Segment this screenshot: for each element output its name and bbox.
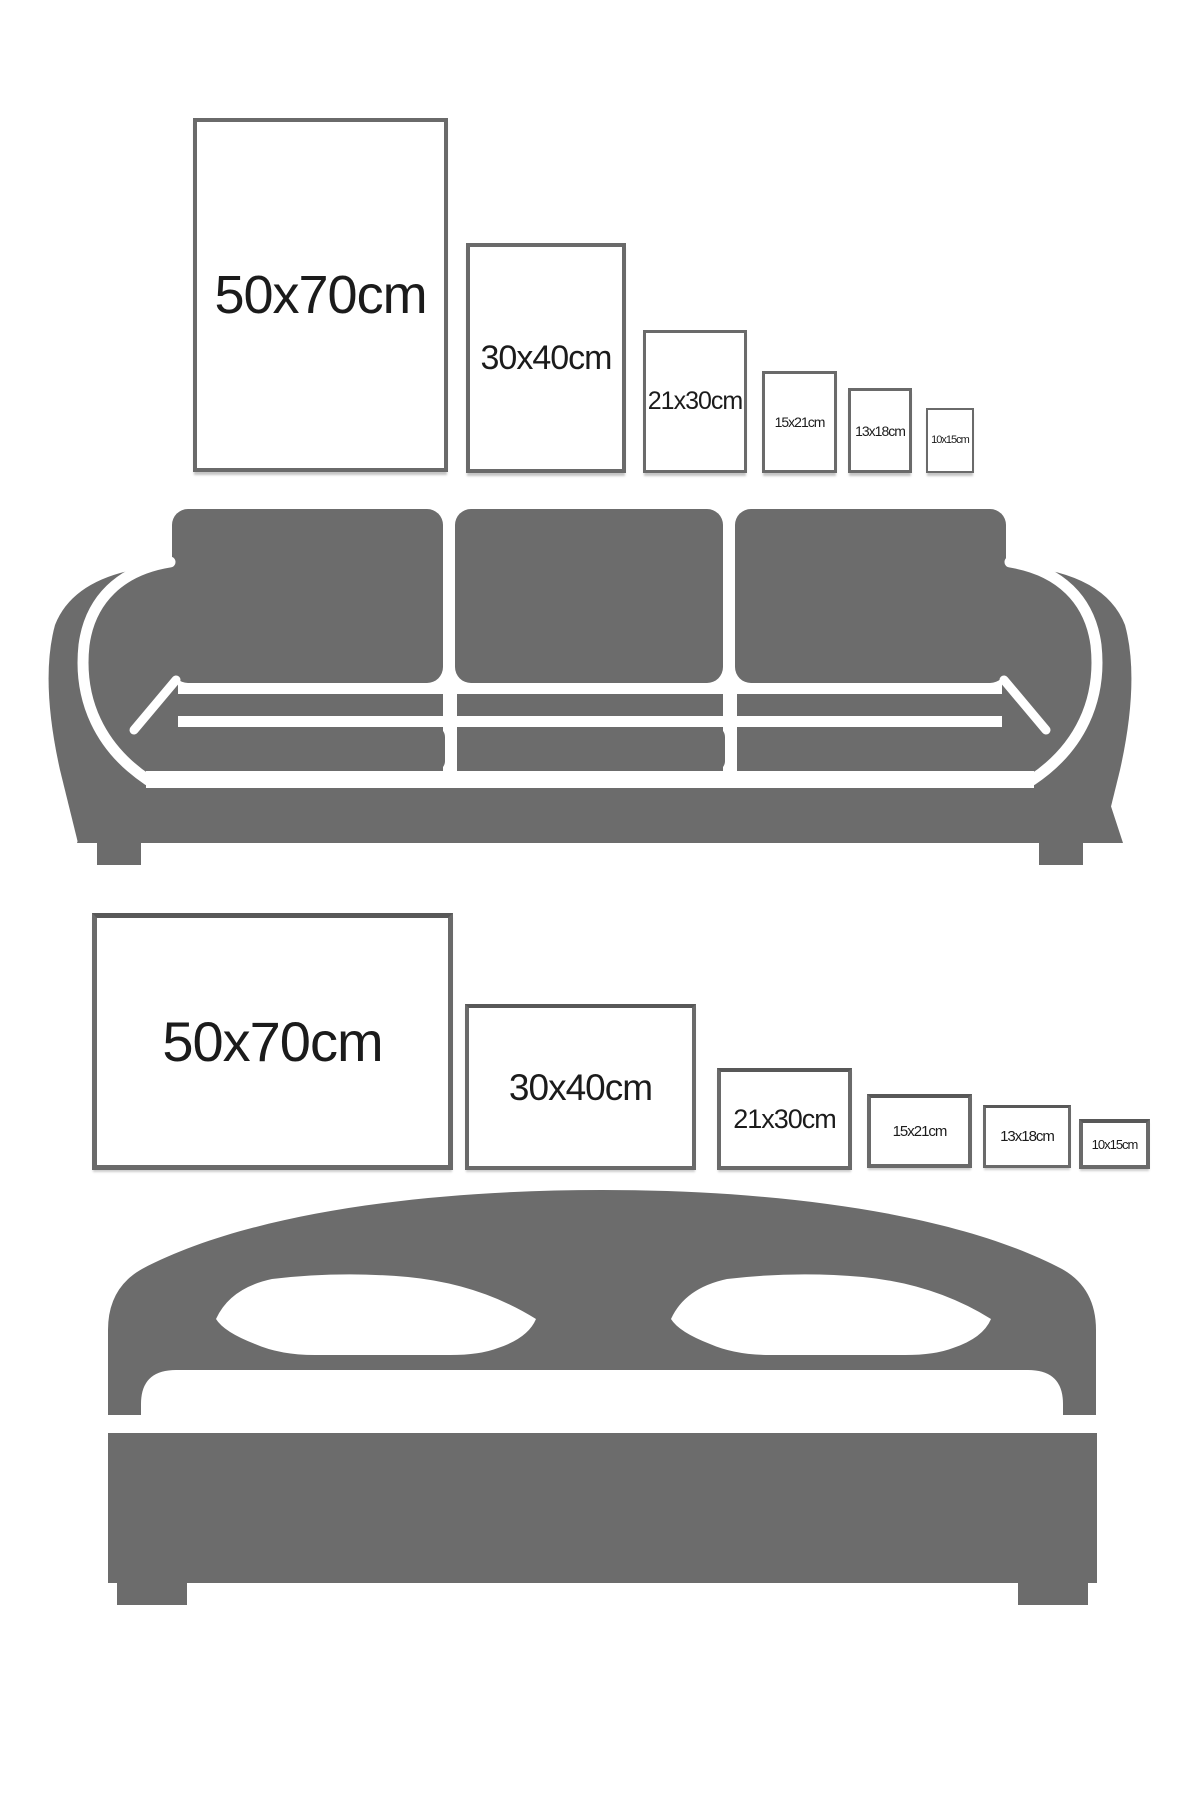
- size-frame-label: 15x21cm: [893, 1124, 947, 1139]
- sofa-back-cushion-2: [455, 509, 723, 683]
- size-frame-30x40cm-landscape: 30x40cm: [465, 1004, 696, 1170]
- size-frame-label: 21x30cm: [648, 389, 742, 414]
- size-frame-50x70cm-portrait: 50x70cm: [193, 118, 448, 472]
- size-frame-label: 10x15cm: [1092, 1138, 1138, 1151]
- bed-foot-right: [1018, 1583, 1088, 1605]
- sofa-seat-cushion-1: [137, 727, 445, 771]
- size-guide-infographic: 50x70cm30x40cm21x30cm15x21cm13x18cm10x15…: [0, 0, 1200, 1800]
- size-frame-label: 15x21cm: [775, 415, 825, 429]
- size-frame-21x30cm-landscape: 21x30cm: [717, 1068, 852, 1170]
- size-frame-label: 30x40cm: [481, 341, 612, 375]
- size-frame-10x15cm-landscape: 10x15cm: [1079, 1119, 1150, 1169]
- bed-base: [108, 1433, 1097, 1583]
- size-frame-50x70cm-landscape: 50x70cm: [92, 913, 453, 1170]
- sofa-foot-right: [1039, 843, 1083, 865]
- sofa-foot-left: [97, 843, 141, 865]
- size-frame-label: 30x40cm: [509, 1069, 652, 1106]
- sofa-seat-cushion-2: [457, 727, 725, 771]
- sofa-back-cushion-1: [172, 509, 443, 683]
- size-frame-13x18cm-landscape: 13x18cm: [983, 1105, 1071, 1168]
- bed-illustration: [0, 1180, 1200, 1620]
- size-frame-label: 21x30cm: [733, 1106, 836, 1133]
- bed-foot-left: [117, 1583, 187, 1605]
- size-frame-label: 13x18cm: [1000, 1129, 1054, 1144]
- sofa-seat-cushion-3: [737, 727, 1042, 771]
- sofa-back-cushion-3: [735, 509, 1006, 683]
- size-frame-label: 50x70cm: [162, 1014, 382, 1070]
- size-frame-15x21cm-landscape: 15x21cm: [867, 1094, 972, 1168]
- sofa-illustration: [0, 430, 1200, 880]
- size-frame-label: 50x70cm: [214, 268, 426, 322]
